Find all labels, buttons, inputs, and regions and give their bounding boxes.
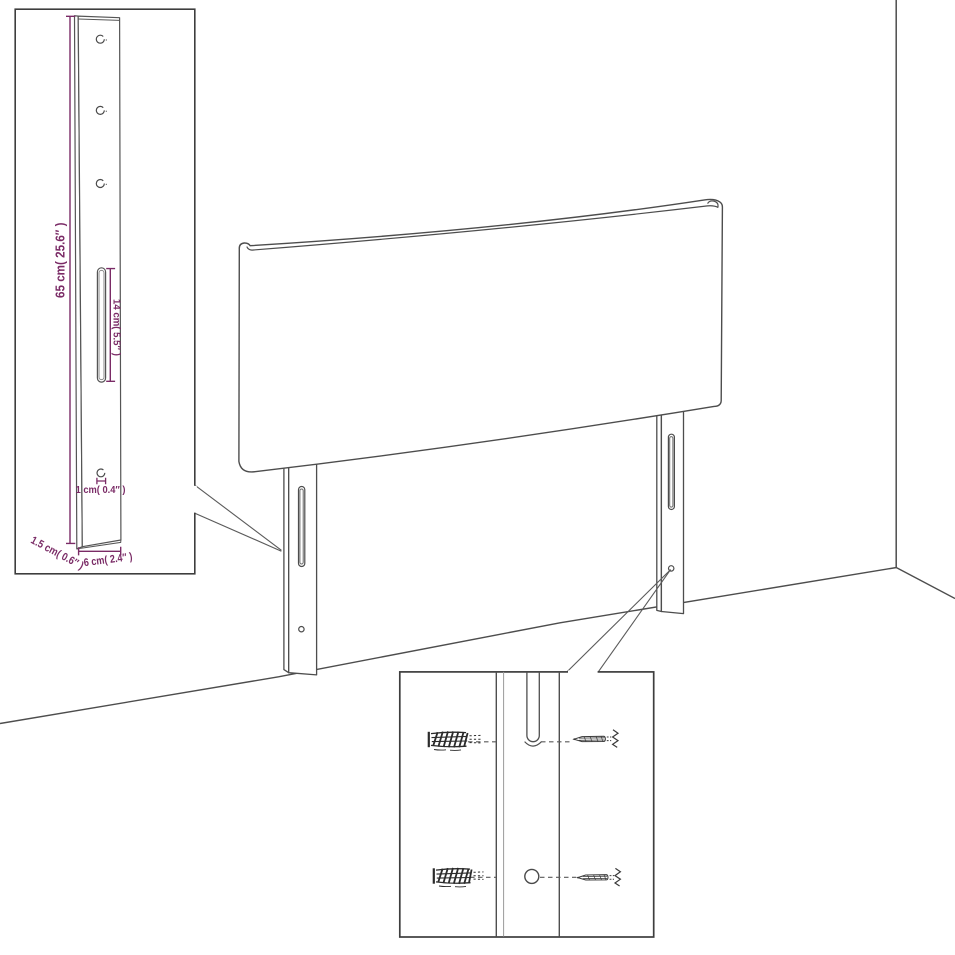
svg-text:1 cm( 0.4″ ): 1 cm( 0.4″ ): [76, 484, 126, 496]
svg-text:14 cm( 5.5″ ): 14 cm( 5.5″ ): [110, 299, 121, 356]
svg-text:65 cm( 25.6″ ): 65 cm( 25.6″ ): [52, 223, 67, 299]
